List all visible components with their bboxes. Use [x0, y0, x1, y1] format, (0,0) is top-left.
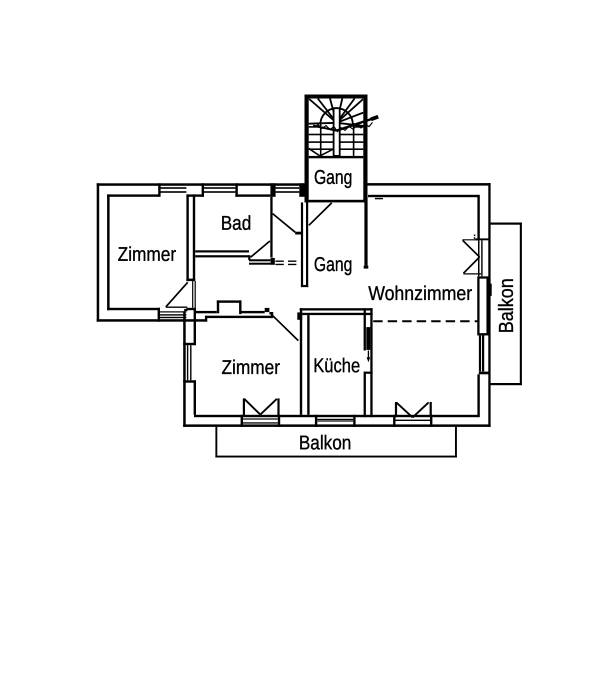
svg-text:Gang: Gang	[314, 167, 353, 189]
svg-text:Zimmer: Zimmer	[221, 357, 280, 379]
svg-text:Balkon: Balkon	[496, 278, 518, 333]
svg-text:Bad: Bad	[221, 213, 252, 235]
svg-text:Wohnzimmer: Wohnzimmer	[368, 283, 472, 305]
svg-text:Küche: Küche	[313, 355, 360, 377]
svg-text:Gang: Gang	[314, 254, 353, 276]
svg-text:Balkon: Balkon	[299, 432, 352, 454]
svg-text:Zimmer: Zimmer	[118, 244, 177, 266]
